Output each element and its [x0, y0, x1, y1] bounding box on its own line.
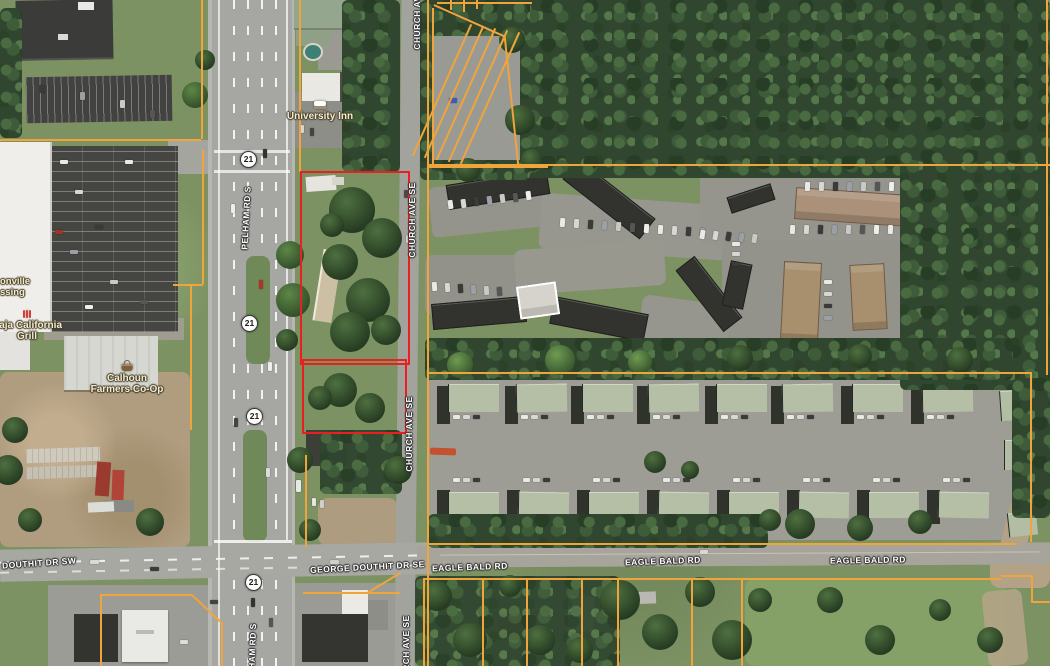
mobile-unit — [716, 384, 767, 412]
poi-label-jacksonville-crossing[interactable]: onville ssing — [0, 276, 30, 298]
vehicle — [700, 550, 708, 554]
vehicle — [846, 225, 851, 234]
tree — [712, 620, 752, 660]
vehicle — [484, 286, 490, 295]
vehicle — [463, 415, 470, 419]
vehicle — [731, 415, 738, 419]
tree — [299, 519, 321, 541]
vehicle — [60, 160, 68, 164]
vehicle — [266, 468, 270, 477]
vehicle — [877, 415, 884, 419]
parcel-line — [428, 166, 548, 168]
vehicle — [883, 478, 890, 482]
lane-line — [275, 580, 277, 666]
tree — [545, 345, 575, 375]
vehicle — [733, 478, 740, 482]
route-shield-21: 21 — [246, 408, 263, 425]
tree — [525, 625, 555, 655]
vehicle — [803, 478, 810, 482]
tree — [685, 577, 715, 607]
tree — [947, 347, 973, 373]
vehicle — [234, 418, 238, 427]
vehicle — [813, 478, 820, 482]
tree — [748, 588, 772, 612]
poi-text: Baja California — [0, 320, 62, 331]
parcel-line — [476, 0, 478, 9]
vehicle — [672, 226, 678, 235]
vehicle — [523, 478, 530, 482]
vehicle — [453, 478, 460, 482]
lane-line — [233, 0, 235, 538]
highlighted-parcel-outline-south — [302, 359, 407, 434]
crosswalk — [214, 170, 290, 173]
lane-line — [233, 580, 235, 666]
vehicle — [473, 415, 480, 419]
apartment-building — [849, 263, 887, 331]
median — [246, 256, 270, 364]
vehicle — [819, 182, 824, 191]
vehicle — [180, 640, 188, 644]
parcel-line — [173, 284, 203, 286]
parcel-line — [427, 0, 429, 666]
vehicle — [471, 285, 477, 294]
highlighted-parcel-outline-north — [300, 171, 410, 365]
parcel-line — [299, 0, 301, 172]
parcel-line — [1031, 601, 1050, 603]
tree — [977, 627, 1003, 653]
mobile-unit — [582, 384, 633, 412]
vehicle — [210, 600, 218, 604]
vehicle — [824, 280, 832, 284]
greenhouse — [26, 447, 100, 464]
vehicle — [818, 225, 823, 234]
mobile-unit — [648, 384, 699, 413]
vehicle — [499, 194, 505, 204]
median — [243, 430, 267, 542]
poi-text: onville — [0, 276, 30, 287]
vehicle — [80, 92, 85, 100]
vehicle — [85, 305, 93, 309]
vehicle — [310, 128, 314, 136]
vehicle — [263, 149, 267, 158]
mobile-unit — [516, 384, 567, 413]
vehicle — [541, 415, 548, 419]
dirt-patch — [318, 498, 398, 546]
poi-label-calhoun-farmers-coop[interactable]: Calhoun Farmers Co-Op — [91, 364, 164, 395]
vehicle — [521, 415, 528, 419]
vehicle — [653, 415, 660, 419]
vehicle — [875, 182, 880, 191]
vehicle — [658, 225, 664, 234]
vehicle — [120, 100, 125, 108]
parcel-line — [427, 543, 1017, 545]
vehicle — [721, 415, 728, 419]
map-shape — [218, 0, 220, 666]
red-trailer — [430, 448, 456, 456]
road-label-church-ave-se-2: CHURCH AVE SE — [407, 182, 417, 257]
vehicle — [75, 190, 83, 194]
forest — [420, 30, 432, 170]
vehicle — [888, 225, 893, 234]
vehicle — [259, 280, 263, 289]
vehicle — [269, 618, 273, 627]
vehicle — [231, 204, 235, 213]
vehicle — [445, 283, 451, 292]
parcel-line — [201, 0, 203, 139]
satellite-map[interactable]: PELHAM RD S PELHAM RD S CHURCH AVE SE CH… — [0, 0, 1050, 666]
vehicle — [889, 182, 894, 191]
apartment-building — [780, 261, 822, 343]
parcel-line — [526, 578, 528, 666]
parcel-line — [482, 578, 484, 666]
vehicle — [110, 280, 118, 284]
vehicle — [805, 182, 810, 191]
vehicle — [937, 415, 944, 419]
road-label-eagle-bald-rd-3: EAGLE BALD RD — [830, 554, 906, 565]
parcel-line — [1001, 575, 1031, 577]
tree — [759, 509, 781, 531]
tree — [681, 461, 699, 479]
vehicle — [874, 225, 879, 234]
vehicle — [787, 415, 794, 419]
greenhouse — [26, 465, 100, 480]
tree — [567, 637, 593, 663]
tree — [628, 350, 652, 374]
fuel-pumps — [136, 630, 154, 634]
vehicle — [833, 182, 838, 191]
parcel-line — [221, 622, 223, 666]
vehicle — [947, 415, 954, 419]
vehicle — [963, 478, 970, 482]
vehicle — [873, 478, 880, 482]
poi-text: Grill — [17, 331, 37, 342]
tree — [505, 105, 535, 135]
map-shape — [78, 2, 94, 10]
tree — [18, 508, 42, 532]
parcel-line — [100, 594, 192, 596]
corner-store — [302, 614, 368, 662]
tree — [929, 599, 951, 621]
vehicle — [673, 415, 680, 419]
vehicle — [150, 567, 159, 571]
poi-text: Farmers Co-Op — [91, 384, 164, 395]
road-label-church-ave-se-3: CHURCH AVE SE — [404, 396, 414, 471]
tree — [908, 510, 932, 534]
tree — [847, 515, 873, 541]
vehicle — [732, 242, 740, 246]
parcel-line — [423, 578, 425, 666]
parcel-line — [691, 578, 693, 666]
vehicle — [55, 230, 63, 234]
vehicle — [644, 224, 650, 233]
vehicle — [753, 478, 760, 482]
map-shape — [88, 501, 114, 512]
route-shield-21: 21 — [245, 574, 262, 591]
route-shield-21: 21 — [241, 315, 258, 332]
poi-label-baja-california-grill[interactable]: Baja California Grill — [0, 310, 62, 342]
vehicle — [150, 110, 155, 118]
vehicle — [927, 415, 934, 419]
forest — [0, 8, 22, 138]
vehicle — [602, 221, 608, 230]
vehicle — [525, 191, 531, 201]
gas-building — [74, 614, 118, 662]
vehicle — [268, 362, 272, 371]
parcel-line — [1030, 372, 1032, 542]
vehicle — [90, 560, 99, 564]
vehicle — [804, 225, 809, 234]
parcel-line — [463, 0, 465, 12]
mobile-unit — [782, 384, 833, 413]
vehicle — [251, 598, 255, 607]
vehicle — [497, 287, 503, 296]
vehicle — [458, 284, 464, 293]
tree — [644, 451, 666, 473]
vehicle — [673, 478, 680, 482]
parcel-line — [581, 578, 583, 666]
vehicle — [533, 478, 540, 482]
road-label-church-ave-se-4: CHURCH AVE SE — [401, 615, 411, 666]
map-shape — [111, 470, 124, 500]
tree — [817, 587, 843, 613]
vehicle — [797, 415, 804, 419]
tree — [287, 447, 313, 473]
vehicle — [953, 478, 960, 482]
vehicle — [463, 478, 470, 482]
vehicle — [603, 478, 610, 482]
vehicle — [741, 415, 748, 419]
road-label-church-ave-se-1: CHURCH AVE SE — [412, 0, 422, 50]
vehicle — [587, 415, 594, 419]
tree — [642, 614, 678, 650]
vehicle — [432, 282, 438, 291]
vehicle — [823, 478, 830, 482]
parcel-line — [0, 139, 201, 141]
vehicle — [857, 415, 864, 419]
vehicle — [824, 304, 832, 308]
vehicle — [732, 262, 740, 266]
vehicle — [296, 480, 301, 492]
map-shape — [368, 600, 388, 630]
forest — [425, 338, 1013, 380]
vehicle — [593, 478, 600, 482]
vehicle — [790, 225, 795, 234]
vehicle — [832, 225, 837, 234]
parcel-line — [450, 0, 452, 10]
vehicle — [40, 85, 45, 93]
vehicle — [574, 219, 580, 228]
vehicle — [847, 182, 852, 191]
route-shield-21: 21 — [240, 151, 257, 168]
vehicle — [560, 218, 566, 227]
parcel-line — [190, 284, 192, 430]
vehicle — [588, 220, 594, 229]
big-box-store — [0, 142, 52, 332]
tree — [727, 345, 753, 371]
parcel-line — [1031, 575, 1033, 602]
parcel-line — [100, 594, 102, 666]
parcel-line — [423, 578, 1001, 580]
vehicle — [893, 478, 900, 482]
vehicle — [860, 225, 865, 234]
parcel-line — [1046, 0, 1048, 375]
vehicle — [867, 415, 874, 419]
map-shape — [95, 462, 111, 497]
parcel-line — [427, 372, 1032, 374]
tree — [447, 352, 473, 378]
parcel-line — [741, 578, 743, 666]
tree — [865, 625, 895, 655]
tree — [848, 344, 872, 368]
tree — [195, 50, 215, 70]
forest — [342, 0, 400, 172]
vehicle — [447, 200, 453, 210]
mobile-unit — [448, 384, 499, 412]
vehicle — [663, 415, 670, 419]
vehicle — [607, 415, 614, 419]
stop-bar — [214, 540, 292, 543]
tree — [182, 82, 208, 108]
vehicle — [95, 225, 103, 229]
vehicle — [320, 500, 324, 508]
vehicle — [861, 182, 866, 191]
tree — [785, 509, 815, 539]
mobile-unit — [938, 492, 989, 519]
office-building — [516, 281, 560, 319]
inn-building — [302, 73, 340, 101]
vehicle — [140, 300, 148, 304]
map-shape — [58, 34, 68, 40]
poi-text: University Inn — [287, 111, 353, 122]
vehicle — [732, 252, 740, 256]
vehicle — [473, 478, 480, 482]
road-label-pelham-rd-s-south: PELHAM RD S — [246, 623, 258, 666]
vehicle — [473, 197, 479, 207]
parcel-line — [305, 455, 307, 547]
vehicle — [943, 478, 950, 482]
parcel-line — [202, 150, 204, 284]
vehicle — [453, 415, 460, 419]
vehicle — [543, 478, 550, 482]
map-shape — [342, 590, 368, 616]
vehicle — [663, 478, 670, 482]
store-parking — [52, 146, 178, 332]
vehicle — [125, 160, 133, 164]
vehicle — [312, 498, 316, 506]
vehicle — [824, 316, 832, 320]
restaurant-icon — [26, 310, 28, 318]
tree — [276, 329, 298, 351]
shopping-basket-icon — [121, 364, 132, 371]
bed-icon — [314, 101, 326, 109]
vehicle — [686, 227, 692, 236]
vehicle — [597, 415, 604, 419]
poi-text: ssing — [0, 287, 25, 298]
tree — [521, 149, 543, 171]
parcel-line — [303, 592, 400, 594]
vehicle — [743, 478, 750, 482]
tree — [600, 580, 640, 620]
tree — [136, 508, 164, 536]
vehicle — [807, 415, 814, 419]
vehicle — [824, 292, 832, 296]
parcel-line — [617, 578, 619, 666]
vehicle — [70, 250, 78, 254]
vehicle — [630, 223, 636, 232]
vehicle — [613, 478, 620, 482]
lane-line — [275, 0, 277, 538]
vehicle — [531, 415, 538, 419]
lane-line — [261, 580, 263, 666]
vehicle — [300, 125, 304, 133]
parcel-line — [432, 8, 434, 166]
tree — [2, 417, 28, 443]
vehicle — [616, 222, 622, 231]
building-dark — [15, 0, 113, 61]
satellite-imagery — [0, 0, 1050, 666]
poi-text: Calhoun — [107, 373, 147, 384]
gas-canopy — [122, 610, 168, 662]
pool — [305, 45, 321, 59]
mobile-unit — [852, 384, 903, 412]
poi-label-university-inn[interactable]: University Inn — [287, 101, 353, 122]
